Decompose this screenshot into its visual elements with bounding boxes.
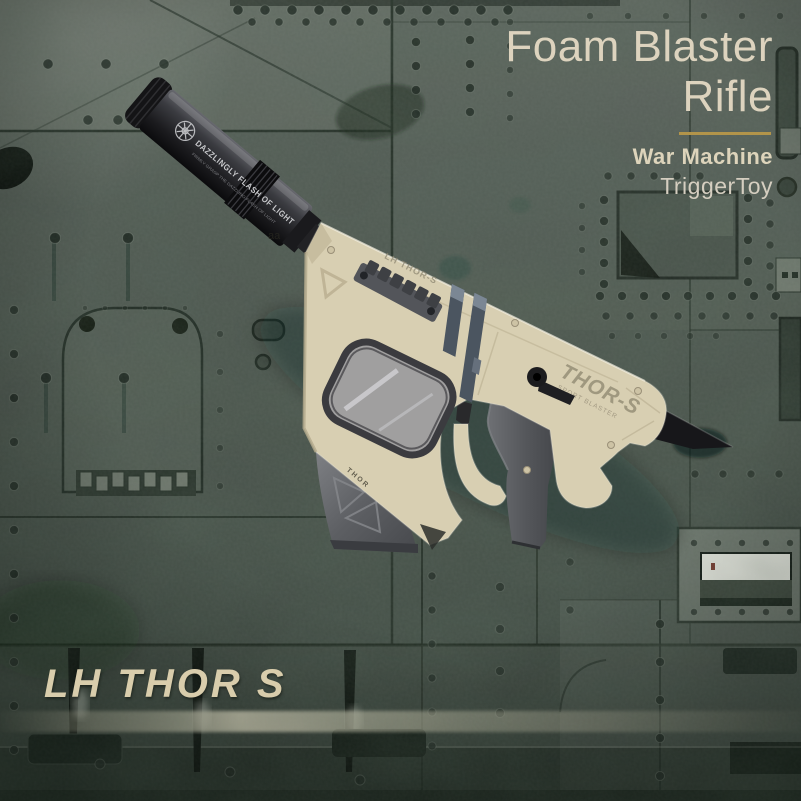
brand-name: War Machine xyxy=(505,144,773,170)
header-block: Foam Blaster Rifle War Machine TriggerTo… xyxy=(505,22,773,200)
model-name: LH THOR S xyxy=(44,662,287,707)
product-image: DAZZLINGLY FLASH OF LIGHT FIRMLY GRASP T… xyxy=(0,0,801,801)
page-title: Foam Blaster Rifle xyxy=(505,22,773,122)
gold-divider xyxy=(679,132,771,135)
title-line-2: Rifle xyxy=(505,72,773,122)
title-line-1: Foam Blaster xyxy=(505,22,773,72)
maker-name: TriggerToy xyxy=(505,173,773,200)
wall-marking: aa xyxy=(268,230,280,242)
